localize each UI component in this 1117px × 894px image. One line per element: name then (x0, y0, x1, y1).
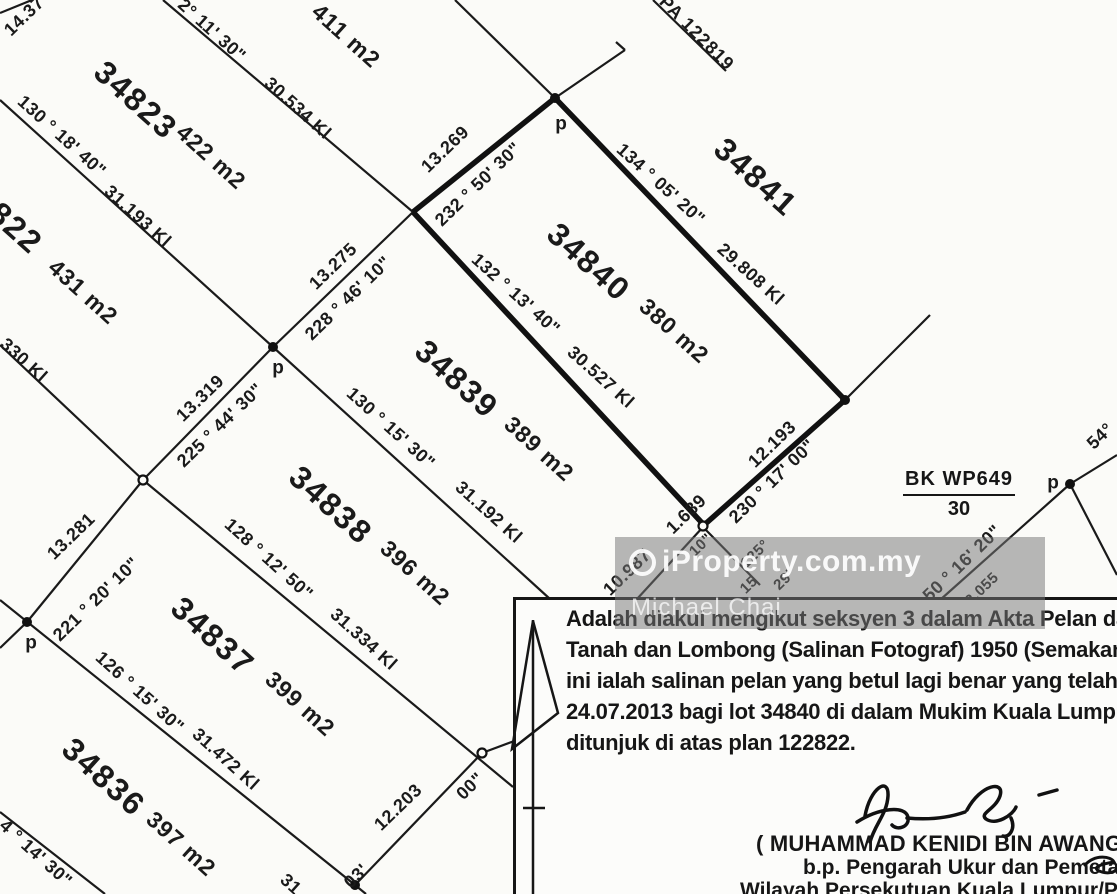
bearing-distance-label: 130 ° 15' 30" (344, 384, 439, 472)
watermark-username: Michael Chai (631, 594, 782, 622)
north-arrow-icon (500, 610, 580, 894)
bearing-distance-label: 31.334 Kl (327, 605, 400, 674)
lot-area-label: 397 m2 (142, 807, 220, 880)
lot-number-label: 822 (0, 196, 49, 260)
bearing-distance-label: 14.37 (1, 0, 48, 39)
bearing-distance-label: 13.269 (418, 122, 472, 175)
certification-text-line: ini ialah salinan pelan yang betul lagi … (566, 665, 1117, 696)
bearing-distance-label: 2° 11' 30" (175, 0, 250, 65)
lot-area-label: 431 m2 (44, 255, 122, 328)
bearing-distance-label: 134 ° 05' 20" (614, 140, 709, 228)
surveyor-name: ( MUHAMMAD KENIDI BIN AWANG AZIZ (756, 831, 1117, 857)
surveyor-office: Wilayah Persekutuan Kuala Lumpur/Putraja (740, 879, 1117, 894)
lot-number-label: 34836 (57, 732, 152, 822)
bearing-distance-label: 132 ° 13' 40" (469, 250, 564, 338)
bearing-distance-label: 31.192 Kl (452, 478, 525, 547)
bearing-distance-label: 31 (277, 870, 305, 894)
bearing-distance-label: 128 ° 12' 50" (222, 515, 317, 603)
lot-number-label: 34838 (284, 460, 379, 550)
bearing-distance-label: 00" (453, 769, 487, 803)
lot-area-label: 380 m2 (635, 294, 713, 367)
bearing-distance-label: 221 ° 20' 10" (50, 554, 143, 644)
bearing-distance-label: 225 ° 44' 30" (174, 380, 267, 470)
bearing-distance-label: 126 ° 15' 30" (93, 648, 188, 736)
bearing-distance-label: 30.527 Kl (564, 343, 637, 412)
peg-marker-label: p (1047, 474, 1059, 493)
bearing-distance-label: 130 ° 18' 40" (15, 92, 110, 180)
survey-plan-page: 3482334841348403483934838348373483682242… (0, 0, 1117, 894)
certification-text-line: ditunjuk di atas plan 122822. (566, 727, 1117, 758)
bearing-distance-label: 54° (1083, 420, 1116, 453)
peg-marker-label: p (272, 359, 284, 378)
certification-text-line: Tanah dan Lombong (Salinan Fotograf) 195… (566, 634, 1117, 665)
lot-number-label: 34823 (89, 55, 184, 145)
lot-number-label: 34841 (709, 132, 804, 222)
bearing-distance-label: 330 Kl (0, 335, 51, 386)
lot-area-label: 399 m2 (261, 667, 339, 740)
bearing-distance-label: 4 ° 14' 30" (0, 816, 76, 890)
lot-area-label: 389 m2 (500, 412, 578, 485)
lot-number-label: 34840 (542, 217, 637, 307)
certification-box: Adalah diakui mengikut seksyen 3 dalam A… (513, 597, 1117, 894)
bearing-distance-label: 12.203 (371, 780, 425, 833)
bearing-distance-label: 29.808 Kl (714, 240, 787, 309)
surveyor-role: b.p. Pengarah Ukur dan Pemetaan (803, 856, 1117, 880)
watermark-brand: iProperty.com.my (662, 545, 921, 579)
block-reference-sheet: 30 (903, 496, 1015, 521)
lot-area-label: 411 m2 (308, 0, 385, 72)
certification-text-line: 24.07.2013 bagi lot 34840 di dalam Mukim… (566, 696, 1117, 727)
bearing-distance-label: 30.534 Kl (261, 74, 334, 143)
bearing-distance-label: 31.193 Kl (101, 182, 174, 251)
peg-marker-label: p (555, 115, 567, 134)
bearing-distance-label: 13.281 (44, 509, 98, 562)
peg-marker-label: p (25, 634, 37, 653)
bearing-distance-label: 03' (340, 861, 371, 892)
lot-number-label: 34837 (166, 591, 261, 681)
lot-number-label: 34839 (410, 334, 505, 424)
initial-scribble-icon (1081, 851, 1117, 885)
bearing-distance-label: 228 ° 46' 10" (302, 253, 395, 343)
plan-reference-label: PA 122819 (656, 0, 737, 74)
bearing-distance-label: 31.472 Kl (189, 725, 262, 794)
block-reference-number: BK WP649 (903, 468, 1015, 496)
lot-area-label: 422 m2 (172, 120, 250, 193)
watermark-logo-icon (629, 549, 656, 576)
watermark-overlay: iProperty.com.my Michael Chai (615, 537, 1045, 629)
lot-area-label: 396 m2 (376, 536, 454, 609)
block-reference: BK WP649 30 (903, 468, 1015, 521)
